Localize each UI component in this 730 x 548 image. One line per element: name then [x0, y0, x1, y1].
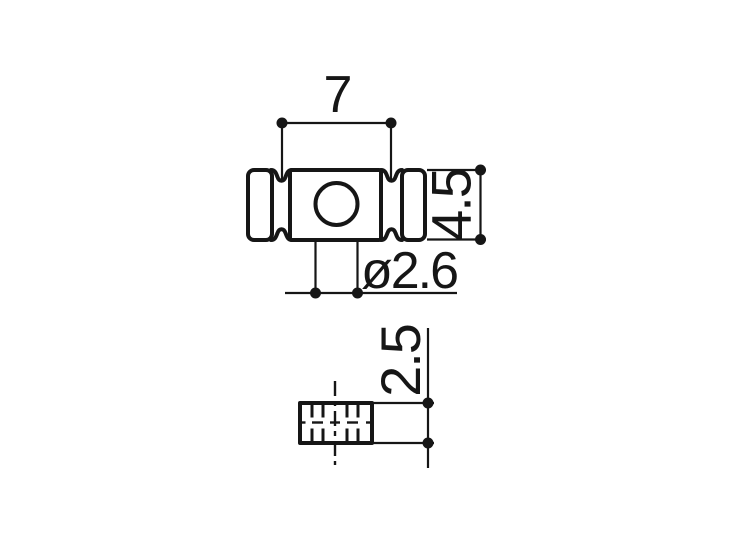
string-hole — [316, 183, 358, 225]
groove-bottom-right — [381, 229, 402, 240]
end-view — [300, 381, 372, 465]
dimension-dot — [277, 118, 288, 129]
dimension-barrel-diameter: 4.5 — [420, 165, 487, 246]
dimension-label-barrel-height: 2.5 — [369, 325, 432, 397]
dimension-label-barrel-diameter: 4.5 — [420, 169, 483, 241]
dimension-label-groove-span: 7 — [324, 66, 351, 124]
technical-drawing-page: 7 4.5 ø2.6 — [0, 0, 730, 548]
barrel-left-cap — [248, 170, 272, 240]
dimension-barrel-height: 2.5 — [369, 325, 434, 468]
dimension-dot — [386, 118, 397, 129]
dimension-hole-diameter: ø2.6 — [285, 242, 457, 300]
dimension-label-hole-diameter: ø2.6 — [361, 242, 457, 300]
dimension-dot — [423, 398, 434, 409]
dimension-groove-span: 7 — [277, 66, 397, 181]
dimension-dot — [423, 438, 434, 449]
dimension-drawing: 7 4.5 ø2.6 — [0, 0, 730, 548]
dimension-dot — [310, 288, 321, 299]
